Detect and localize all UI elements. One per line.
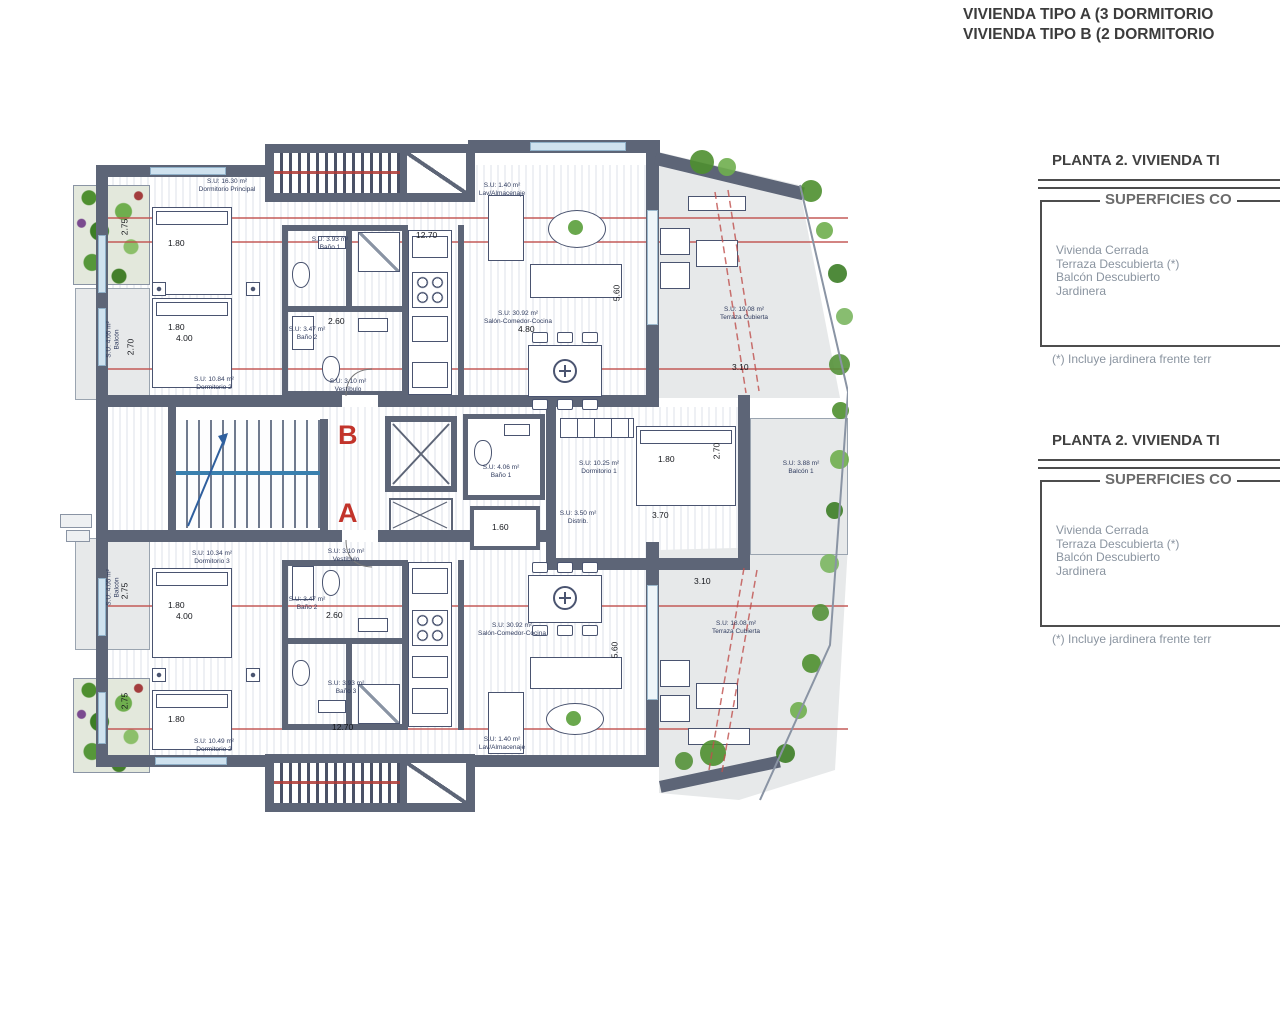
room-label-terraza-a: S.U: 18.08 m²Terraza Cubierta [680, 620, 792, 635]
room-label-salon-a: S.U: 30.92 m²Salón-Comedor-Cocina [450, 622, 574, 637]
chair [532, 399, 548, 410]
room-area: S.U: 10.84 m² [158, 376, 270, 384]
window [530, 142, 626, 151]
cooktop [412, 610, 448, 646]
louvre-slats [274, 153, 400, 193]
dim-1-80: 1.80 [658, 454, 675, 464]
tv-unit-b [488, 195, 524, 261]
plant-blob [675, 752, 693, 770]
panel-title: PLANTA 2. VIVIENDA TI [1052, 152, 1280, 169]
dim-1-60: 1.60 [492, 522, 509, 532]
plant-blob [802, 654, 821, 673]
room-label-salon-b: S.U: 30.92 m²Salón-Comedor-Cocina [456, 310, 580, 325]
dim-3-10: 3.10 [732, 362, 749, 372]
terrace-table-a [696, 683, 738, 709]
terrace-armchair [660, 695, 690, 722]
room-name: Terraza Cubierta [688, 314, 800, 322]
cooktop [412, 272, 448, 308]
elevator-shaft [385, 416, 457, 492]
pergola-hatch-top [265, 144, 475, 202]
room-label-left-balcon-b: S.U: 4.05 m²Balcón [106, 284, 121, 396]
panel-subtitle: SUPERFICIES CO [1100, 471, 1237, 488]
room-label-bano1-b: S.U: 3.93 m²Baño 1 [300, 236, 360, 251]
dim-4-80: 4.80 [518, 324, 535, 334]
room-name: Dormitorio 3 [160, 558, 264, 566]
dim-3-10: 3.10 [694, 576, 711, 586]
room-label-dormitorio2-a: S.U: 10.49 m²Dormitorio 2 [158, 738, 270, 753]
machine-room [407, 763, 466, 803]
room-label-lav-top: S.U: 1.40 m²Lav/Almacenaje [460, 182, 544, 197]
dim-4-00: 4.00 [176, 611, 193, 621]
room-name: Vestíbulo [310, 556, 382, 564]
list-item: Jardinera [1056, 565, 1179, 579]
floor-plan: B A [60, 140, 848, 815]
room-label-left-balcon-a: S.U: 4.05 m²Balcón [106, 532, 121, 644]
chair [557, 332, 573, 343]
louvre-slats [274, 763, 400, 803]
room-label-dormitorio-principal: S.U: 16.30 m²Dormitorio Principal [168, 178, 286, 193]
unit-letter-a: A [338, 498, 358, 529]
window [98, 692, 106, 744]
dim-2-75: 2.75 [119, 219, 129, 236]
plant-blob [800, 180, 822, 202]
dim-12-70: 12.70 [332, 722, 353, 732]
dim-2-60: 2.60 [328, 316, 345, 326]
room-area: S.U: 4.05 m² [106, 532, 114, 644]
dim-2-70: 2.70 [125, 339, 135, 356]
room-label-dormitorio2-b: S.U: 10.84 m²Dormitorio 2 [158, 376, 270, 391]
room-label-bano3-a: S.U: 3.93 m²Baño 3 [314, 680, 378, 695]
room-label-bano1-a: S.U: 4.06 m²Baño 1 [466, 464, 536, 479]
room-area: S.U: 3.93 m² [314, 680, 378, 688]
room-area: S.U: 3.88 m² [766, 460, 836, 468]
toilet [292, 262, 310, 288]
wall-kitchen-a [458, 560, 464, 730]
list-item: Vivienda Cerrada [1056, 244, 1179, 258]
surface-panel-tipo-b: PLANTA 2. VIVIENDA TI SUPERFICIES CO Viv… [1038, 148, 1280, 370]
surface-list: Vivienda Cerrada Terraza Descubierta (*)… [1056, 244, 1179, 298]
bath-divider [282, 638, 408, 644]
panel-rule [1038, 179, 1280, 189]
sliding-door-a [647, 585, 658, 700]
dim-1-80: 1.80 [168, 714, 185, 724]
left-step-detail [66, 530, 90, 542]
balcony-1 [750, 418, 848, 555]
title-line-tipo-b: VIVIENDA TIPO B (2 DORMITORIO [963, 25, 1280, 45]
plant-blob [826, 502, 843, 519]
oven [412, 316, 448, 342]
room-label-terraza-b: S.U: 19.08 m²Terraza Cubierta [688, 306, 800, 321]
room-area: S.U: 18.08 m² [680, 620, 792, 628]
plant-blob [690, 150, 714, 174]
room-name: Baño 3 [314, 688, 378, 696]
chair [582, 399, 598, 410]
wall-dorm1-right [738, 395, 750, 570]
terrace-armchair [660, 262, 690, 289]
bed-dorm1 [636, 426, 736, 506]
unit-letter-b: B [338, 420, 358, 451]
sink [504, 424, 530, 436]
surface-list: Vivienda Cerrada Terraza Descubierta (*)… [1056, 524, 1179, 578]
room-area: S.U: 3.47 m² [276, 326, 338, 334]
room-area: S.U: 3.10 m² [312, 378, 384, 386]
dim-1-80: 1.80 [168, 600, 185, 610]
chair [582, 332, 598, 343]
window [155, 757, 227, 765]
room-name: Balcón 1 [766, 468, 836, 476]
room-label-dormitorio1: S.U: 10.25 m²Dormitorio 1 [558, 460, 640, 475]
room-area: S.U: 3.10 m² [310, 548, 382, 556]
list-item: Vivienda Cerrada [1056, 524, 1179, 538]
list-item: Terraza Descubierta (*) [1056, 258, 1179, 272]
terrace-sofa-b [688, 196, 746, 211]
toilet [292, 660, 310, 686]
hatch-divider [400, 153, 407, 193]
nightstand [246, 668, 260, 682]
room-area: S.U: 3.93 m² [300, 236, 360, 244]
hatch-divider [400, 763, 407, 803]
left-step-detail [60, 514, 92, 528]
shower-tray [292, 566, 314, 600]
table-centerpiece [553, 586, 577, 610]
wall-stair-right [320, 419, 328, 542]
drawing-title: VIVIENDA TIPO A (3 DORMITORIO VIVIENDA T… [963, 5, 1280, 45]
room-area: S.U: 10.34 m² [160, 550, 264, 558]
terrace-armchair [660, 660, 690, 687]
dim-12-70: 12.70 [416, 230, 437, 240]
pillow [156, 302, 228, 316]
room-area: S.U: 4.06 m² [466, 464, 536, 472]
room-name: Dormitorio 1 [558, 468, 640, 476]
wall-dorm1-left [546, 395, 556, 570]
list-item: Jardinera [1056, 285, 1179, 299]
stair-rail [176, 471, 320, 475]
room-label-bano2-b: S.U: 3.47 m²Baño 2 [276, 326, 338, 341]
room-name: Vestíbulo [312, 386, 384, 394]
toilet [322, 570, 340, 596]
fridge [412, 568, 448, 594]
sink [358, 318, 388, 332]
kitchen-sink [412, 656, 448, 678]
fridge [412, 362, 448, 388]
plant-blob [812, 604, 829, 621]
dim-2-60: 2.60 [326, 610, 343, 620]
plant-blob [790, 702, 807, 719]
room-label-distribuidor: S.U: 3.50 m²Distrib. [546, 510, 610, 525]
panel-rule [1038, 459, 1280, 469]
room-name: Terraza Cubierta [680, 628, 792, 636]
chair [557, 399, 573, 410]
list-item: Balcón Descubierto [1056, 551, 1179, 565]
room-area: S.U: 19.08 m² [688, 306, 800, 314]
sink [318, 700, 346, 713]
panel-footnote: (*) Incluye jardinera frente terr [1052, 352, 1280, 366]
room-area: S.U: 3.47 m² [276, 596, 338, 604]
wall-stair-cap [168, 407, 176, 542]
room-label-vestibulo-a: S.U: 3.10 m²Vestíbulo [310, 548, 382, 563]
wardrobe-dorm1 [560, 418, 634, 438]
nightstand [152, 282, 166, 296]
title-line-tipo-a: VIVIENDA TIPO A (3 DORMITORIO [963, 5, 1280, 25]
room-area: S.U: 1.40 m² [460, 182, 544, 190]
dim-2-70: 2.70 [711, 443, 721, 460]
list-item: Balcón Descubierto [1056, 271, 1179, 285]
plant-blob [820, 554, 839, 573]
table-centerpiece [553, 359, 577, 383]
chair [557, 562, 573, 573]
room-area: S.U: 10.25 m² [558, 460, 640, 468]
plant-blob [828, 264, 847, 283]
room-name: Lav/Almacenaje [460, 190, 544, 198]
sofa-a [530, 657, 622, 689]
surface-panel-tipo-a: PLANTA 2. VIVIENDA TI SUPERFICIES CO Viv… [1038, 428, 1280, 650]
door-gap-b [342, 395, 378, 407]
room-area: S.U: 30.92 m² [456, 310, 580, 318]
dim-2-75: 2.75 [119, 583, 129, 600]
list-item: Terraza Descubierta (*) [1056, 538, 1179, 552]
panel-footnote: (*) Incluye jardinera frente terr [1052, 632, 1280, 646]
bath-divider [282, 306, 408, 312]
room-name: Dormitorio Principal [168, 186, 286, 194]
chair [582, 562, 598, 573]
plant-pot [568, 220, 583, 235]
room-name: Baño 2 [276, 334, 338, 342]
room-name: Salón-Comedor-Cocina [450, 630, 574, 638]
terrace-table-b [696, 240, 738, 267]
terrace-armchair [660, 228, 690, 255]
room-area: S.U: 10.49 m² [158, 738, 270, 746]
dim-5-60: 5.60 [609, 642, 619, 659]
toilet [474, 440, 492, 466]
room-label-bano2-a: S.U: 3.47 m²Baño 2 [276, 596, 338, 611]
plant-blob [700, 740, 726, 766]
panel-subtitle: SUPERFICIES CO [1100, 191, 1237, 208]
machine-room [407, 153, 466, 193]
room-area: S.U: 4.05 m² [106, 284, 114, 396]
room-area: S.U: 16.30 m² [168, 178, 286, 186]
room-name: Dormitorio 2 [158, 384, 270, 392]
room-name: Baño 1 [466, 472, 536, 480]
dim-5-60: 5.60 [611, 285, 621, 302]
dim-2-75: 2.75 [119, 693, 129, 710]
room-area: S.U: 1.40 m² [460, 736, 544, 744]
sink [358, 618, 388, 632]
pillow [156, 694, 228, 708]
plant-pot [566, 711, 581, 726]
plant-blob [829, 354, 850, 375]
room-label-vestibulo-b: S.U: 3.10 m²Vestíbulo [312, 378, 384, 393]
pillow [156, 211, 228, 225]
oven [412, 688, 448, 714]
room-name: Dormitorio 2 [158, 746, 270, 754]
room-name: Lav/Almacenaje [460, 744, 544, 752]
room-label-dormitorio3: S.U: 10.34 m²Dormitorio 3 [160, 550, 264, 565]
nightstand [152, 668, 166, 682]
jardinera-top [73, 185, 150, 285]
vent-shaft [389, 498, 453, 532]
sliding-door-b [647, 210, 658, 325]
chair [532, 562, 548, 573]
room-area: S.U: 30.92 m² [450, 622, 574, 630]
sofa-b [530, 264, 622, 298]
plant-blob [816, 222, 833, 239]
window [150, 167, 226, 175]
room-label-lav-bottom: S.U: 1.40 m²Lav/Almacenaje [460, 736, 544, 751]
plant-blob [832, 402, 849, 419]
room-name: Balcón [113, 284, 121, 396]
dim-1-80: 1.80 [168, 322, 185, 332]
shower [358, 232, 400, 272]
room-area: S.U: 3.50 m² [546, 510, 610, 518]
nightstand [246, 282, 260, 296]
room-name: Baño 1 [300, 244, 360, 252]
pillow [156, 572, 228, 586]
room-name: Distrib. [546, 518, 610, 526]
dim-3-70: 3.70 [652, 510, 669, 520]
pergola-hatch-bottom [265, 754, 475, 812]
chair [582, 625, 598, 636]
plant-blob [836, 308, 853, 325]
room-label-balcon1: S.U: 3.88 m²Balcón 1 [766, 460, 836, 475]
plant-blob [776, 744, 795, 763]
dim-4-00: 4.00 [176, 333, 193, 343]
bed-dorm2-b [152, 298, 232, 388]
dim-1-80: 1.80 [168, 238, 185, 248]
door-gap-a [342, 530, 378, 542]
plant-blob [718, 158, 736, 176]
panel-title: PLANTA 2. VIVIENDA TI [1052, 432, 1280, 449]
